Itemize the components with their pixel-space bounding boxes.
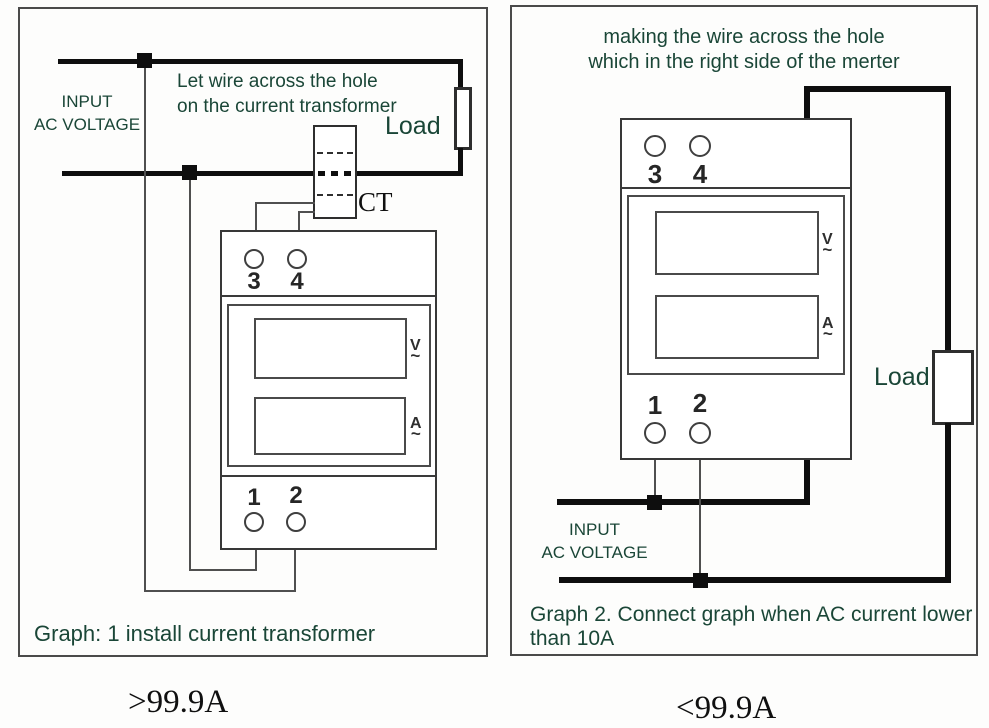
junction-top-wire [137, 53, 152, 68]
ct-dash-bottom [317, 194, 353, 196]
direct-wiring-note: making the wire across the hole which in… [512, 25, 976, 75]
current-display [254, 397, 406, 455]
voltage-symbol: V ~ [822, 232, 833, 258]
supply-wire-1 [557, 499, 810, 505]
ct-secondary-wire-2 [298, 211, 315, 213]
input-ac-voltage-label: INPUT AC VOLTAGE [22, 91, 152, 137]
meter-top-divider [622, 187, 850, 189]
terminal-circle-3 [644, 135, 666, 157]
below-load-wire [945, 423, 951, 583]
note-line1: making the wire across the hole [512, 25, 976, 50]
top-supply-wire [58, 59, 463, 64]
voltage-tap-wire-b-run [189, 569, 257, 571]
terminal-circle-2 [689, 422, 711, 444]
graph2-caption: Graph 2. Connect graph when AC current l… [530, 603, 972, 651]
caption-line1: Graph 2. Connect graph when AC current l… [530, 603, 972, 627]
terminal-circle-4 [287, 249, 307, 269]
current-display [655, 295, 819, 359]
load-label: Load [385, 112, 441, 141]
ac-tilde: ~ [822, 241, 832, 258]
current-symbol: A ~ [822, 316, 834, 342]
ct-dash-top [317, 152, 353, 154]
terminal-circle-1 [244, 512, 264, 532]
ct-secondary-wire-1 [255, 202, 315, 204]
note-line2: on the current transformer [177, 95, 397, 120]
terminal-circle-4 [689, 135, 711, 157]
input-ac-voltage-label: INPUT AC VOLTAGE [522, 519, 667, 565]
terminal-label-3: 3 [643, 161, 667, 187]
graph2-panel: making the wire across the hole which in… [510, 5, 978, 656]
terminal-label-1: 1 [242, 486, 266, 510]
graph1-panel: CT 3 4 V ~ A ~ 1 2 [18, 7, 488, 657]
terminal2-drop-wire [699, 460, 701, 582]
voltage-display [655, 211, 819, 275]
junction-supply-1 [647, 495, 662, 510]
energy-meter: 3 4 V ~ A ~ 1 2 [220, 230, 437, 550]
terminal-circle-1 [644, 422, 666, 444]
terminal-label-2: 2 [688, 390, 712, 416]
voltage-display [254, 318, 407, 379]
terminal-label-1: 1 [643, 392, 667, 418]
meter-bottom-divider [222, 475, 435, 477]
ac-tilde: ~ [411, 425, 421, 442]
ct-wire-dashed-segment [318, 171, 352, 176]
load-label: Load [874, 363, 930, 392]
input-label-line2: AC VOLTAGE [522, 542, 667, 565]
terminal-label-3: 3 [242, 270, 266, 294]
input-label-line1: INPUT [22, 91, 152, 114]
load-resistor [932, 350, 974, 425]
wiring-diagram-page: CT 3 4 V ~ A ~ 1 2 [0, 0, 989, 728]
note-line1: Let wire across the hole [177, 70, 397, 95]
supply-wire-2 [559, 577, 951, 583]
terminal-label-4: 4 [285, 270, 309, 294]
second-supply-wire-right [353, 171, 463, 176]
energy-meter: 3 4 V ~ A ~ 1 2 [620, 118, 852, 460]
graph2-current-rating: <99.9A [676, 690, 776, 727]
wire-to-load-top [458, 59, 463, 90]
junction-second-wire [182, 165, 197, 180]
voltage-tap-wire-a-riser [294, 550, 296, 592]
voltage-tap-wire-b-riser [255, 550, 257, 571]
graph1-current-rating: >99.9A [128, 684, 228, 721]
note-line2: which in the right side of the merter [512, 50, 976, 75]
meter-bottom-wire-drop [804, 460, 810, 505]
graph1-caption: Graph: 1 install current transformer [34, 621, 375, 647]
ac-tilde: ~ [410, 347, 420, 364]
top-run-wire [804, 86, 951, 92]
ct-instruction-note: Let wire across the hole on the current … [177, 70, 397, 119]
ct-secondary-wire-1-drop [255, 202, 257, 232]
load-resistor [454, 87, 472, 150]
voltage-tap-wire-a [144, 68, 146, 592]
ct-label: CT [358, 187, 393, 218]
terminal-circle-3 [244, 249, 264, 269]
input-label-line1: INPUT [522, 519, 667, 542]
voltage-symbol: V ~ [410, 338, 421, 364]
right-down-wire [945, 86, 951, 352]
meter-top-divider [222, 295, 435, 297]
terminal-circle-2 [286, 512, 306, 532]
junction-supply-2 [693, 573, 708, 588]
voltage-tap-wire-a-run [144, 590, 296, 592]
ac-tilde: ~ [823, 325, 833, 342]
ct-secondary-wire-2-drop [298, 211, 300, 232]
terminal-label-4: 4 [688, 161, 712, 187]
input-label-line2: AC VOLTAGE [22, 114, 152, 137]
voltage-tap-wire-b [189, 180, 191, 571]
terminal-label-2: 2 [284, 484, 308, 508]
caption-line2: than 10A [530, 627, 972, 651]
current-symbol: A ~ [410, 416, 422, 442]
